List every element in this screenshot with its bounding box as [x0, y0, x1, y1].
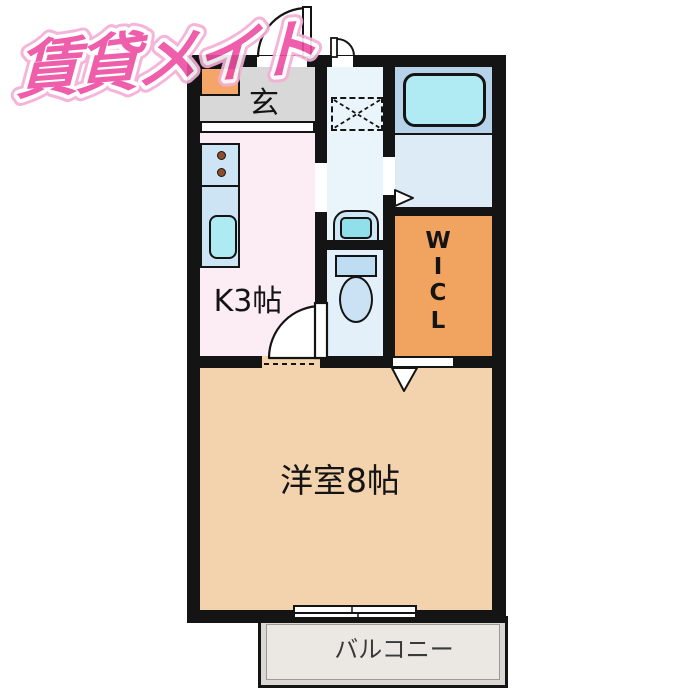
bathroom-door-opening [383, 157, 395, 195]
wic-label-letter: C [430, 280, 447, 306]
wic-label-letter: L [431, 308, 446, 334]
bathtub-icon [403, 73, 486, 127]
kitchen-sink-icon [209, 215, 237, 259]
window-center-line [295, 612, 415, 614]
floorplan-image: バルコニー [0, 0, 700, 700]
stove-burner-icon [217, 151, 226, 160]
stove-section [202, 145, 238, 187]
kitchen-washroom-opening [315, 163, 327, 212]
kitchen-living-doorway [262, 356, 320, 368]
wic-door-opening [391, 356, 455, 368]
balcony-label: バルコニー [334, 630, 454, 665]
living-room-label: 洋室8帖 [280, 454, 400, 502]
sliding-window-icon [293, 605, 417, 619]
washbasin-bowl-icon [340, 217, 372, 239]
logo-fill-text: 賃貸メイト [15, 10, 317, 108]
kitchen-label: K3帖 [214, 276, 283, 320]
wic-label-letter: I [434, 254, 443, 280]
chintai-mate-logo: 賃貸メイト 賃貸メイト 賃貸メイト [0, 2, 360, 142]
stove-burner-icon [217, 168, 226, 177]
wic-label-letter: W [425, 228, 450, 254]
toilet-bowl-icon [339, 276, 373, 323]
toilet-tank-icon [335, 255, 377, 277]
